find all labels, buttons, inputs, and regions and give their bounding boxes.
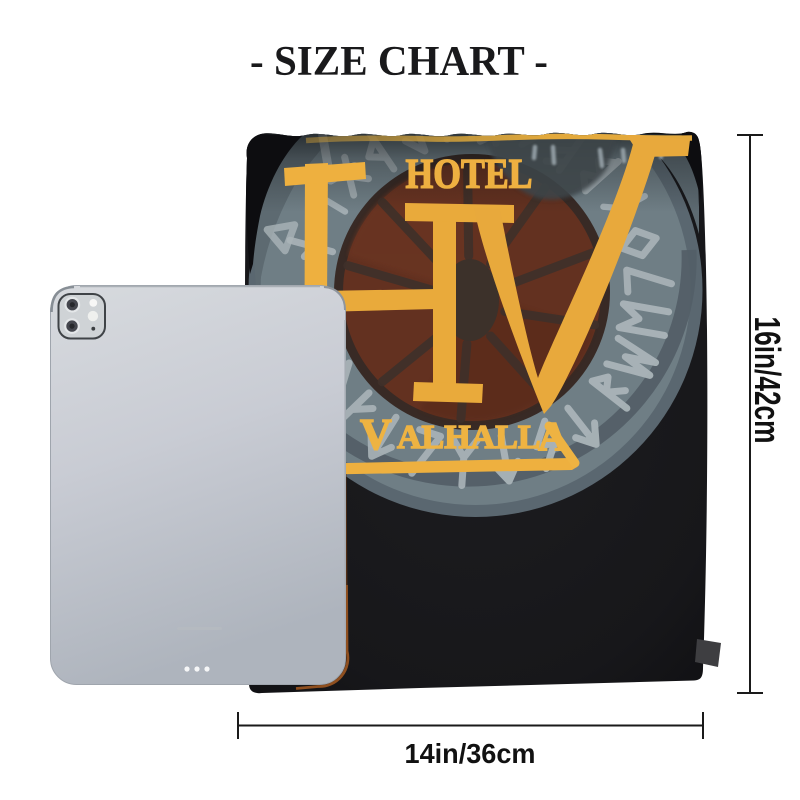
svg-text:V: V xyxy=(360,410,392,459)
svg-text:16in/42cm: 16in/42cm xyxy=(747,317,788,444)
svg-text:- SIZE CHART -: - SIZE CHART - xyxy=(250,39,548,85)
svg-text:ALHALL: ALHALL xyxy=(397,419,541,456)
svg-text:14in/36cm: 14in/36cm xyxy=(405,738,536,769)
svg-text:HOTEL: HOTEL xyxy=(406,152,533,198)
